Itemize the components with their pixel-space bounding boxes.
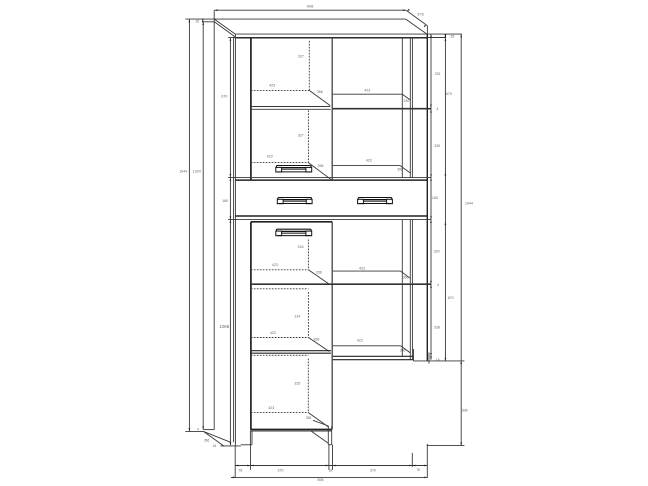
svg-text:356: 356 xyxy=(318,164,324,168)
svg-text:356: 356 xyxy=(313,338,319,342)
svg-text:423: 423 xyxy=(357,339,363,343)
svg-text:1944: 1944 xyxy=(465,201,473,205)
svg-text:356: 356 xyxy=(204,439,210,443)
svg-text:670: 670 xyxy=(221,95,227,99)
svg-text:376: 376 xyxy=(417,12,424,17)
svg-text:423: 423 xyxy=(364,89,370,93)
svg-text:356: 356 xyxy=(316,271,322,275)
svg-text:15: 15 xyxy=(195,20,199,24)
svg-text:423: 423 xyxy=(267,155,273,159)
svg-text:356: 356 xyxy=(400,348,406,352)
svg-text:356: 356 xyxy=(306,416,312,420)
svg-text:356: 356 xyxy=(403,276,409,280)
svg-text:396: 396 xyxy=(462,408,468,412)
svg-text:670: 670 xyxy=(448,296,454,300)
svg-text:327: 327 xyxy=(298,134,304,138)
svg-text:16: 16 xyxy=(329,468,333,472)
svg-text:78: 78 xyxy=(238,468,242,472)
svg-text:1944: 1944 xyxy=(179,169,187,173)
svg-text:335: 335 xyxy=(434,144,440,148)
svg-text:331: 331 xyxy=(435,72,441,76)
svg-text:35: 35 xyxy=(450,34,454,38)
svg-text:670: 670 xyxy=(446,92,452,96)
svg-text:4: 4 xyxy=(436,107,438,111)
svg-text:318: 318 xyxy=(298,245,304,249)
svg-text:1924: 1924 xyxy=(193,169,201,173)
svg-text:4: 4 xyxy=(437,283,439,287)
svg-text:338: 338 xyxy=(434,326,440,330)
svg-text:423: 423 xyxy=(366,159,372,163)
svg-text:423: 423 xyxy=(270,331,276,335)
svg-text:423: 423 xyxy=(269,83,275,87)
svg-text:4: 4 xyxy=(197,428,199,432)
svg-text:356: 356 xyxy=(317,90,323,94)
svg-text:423: 423 xyxy=(272,263,278,267)
svg-text:1068: 1068 xyxy=(219,324,229,329)
svg-text:423: 423 xyxy=(359,266,365,270)
svg-text:370: 370 xyxy=(370,468,376,472)
svg-text:314: 314 xyxy=(294,315,300,319)
svg-text:320: 320 xyxy=(434,249,440,253)
svg-text:356: 356 xyxy=(397,168,403,172)
svg-text:16: 16 xyxy=(213,444,217,448)
svg-text:16: 16 xyxy=(436,358,440,362)
svg-text:327: 327 xyxy=(298,54,304,58)
svg-text:180: 180 xyxy=(432,196,438,200)
svg-text:325: 325 xyxy=(294,381,300,385)
svg-text:150: 150 xyxy=(404,99,410,103)
svg-text:423: 423 xyxy=(268,406,274,410)
svg-text:908: 908 xyxy=(307,4,314,9)
svg-text:70: 70 xyxy=(416,468,420,472)
svg-text:180: 180 xyxy=(222,199,228,203)
svg-text:898: 898 xyxy=(318,478,324,482)
svg-text:370: 370 xyxy=(278,468,284,472)
